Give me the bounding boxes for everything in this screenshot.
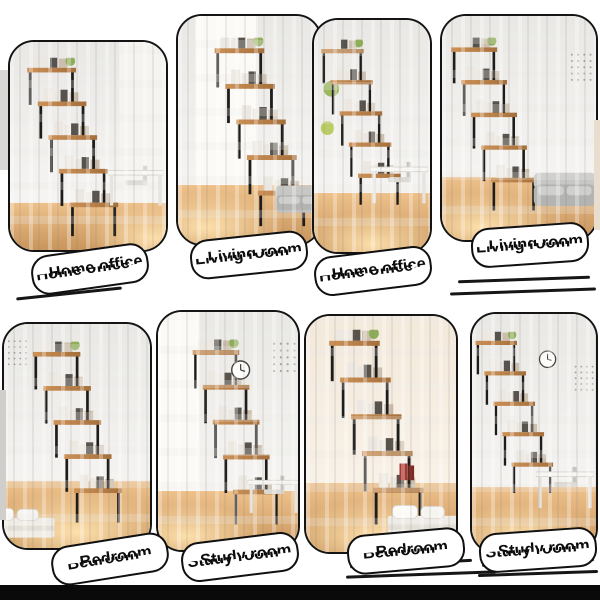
panel-border [312, 18, 432, 254]
panel-border [304, 314, 458, 554]
panel-border [156, 310, 300, 552]
photo-panel-home-office-2 [312, 18, 432, 254]
photo-panel-home-office-1 [8, 40, 168, 252]
photo-panel-bedroom-2 [304, 314, 458, 554]
photo-panel-bedroom-1 [2, 322, 152, 550]
panel-border [8, 40, 168, 252]
label-underline [450, 287, 596, 295]
room-photo-bedroom [306, 316, 456, 552]
room-photo-bedroom [4, 324, 150, 548]
product-collage: Home office Home office Living room Livi… [0, 0, 600, 600]
panel-border [440, 14, 598, 242]
photo-panel-study-room-1 [156, 310, 300, 552]
panel-border [470, 312, 598, 554]
panel-border [2, 322, 152, 550]
photo-panel-living-room-1 [176, 14, 322, 246]
label-underline [458, 276, 590, 283]
room-photo-home-office [314, 20, 430, 252]
room-photo-study-room [158, 312, 298, 550]
room-label-living-room-2: Living room Living room [470, 221, 591, 269]
photo-panel-study-room-2 [470, 312, 598, 554]
room-photo-study-room [472, 314, 596, 552]
room-label-study-room-2: Study room Study room [478, 526, 599, 574]
room-photo-home-office [10, 42, 166, 250]
room-photo-living-room [442, 16, 596, 240]
panel-border [176, 14, 322, 246]
glitch-block [0, 70, 8, 170]
photo-panel-living-room-2 [440, 14, 598, 242]
bottom-black-bar [0, 585, 600, 600]
room-photo-living-room [178, 16, 320, 244]
